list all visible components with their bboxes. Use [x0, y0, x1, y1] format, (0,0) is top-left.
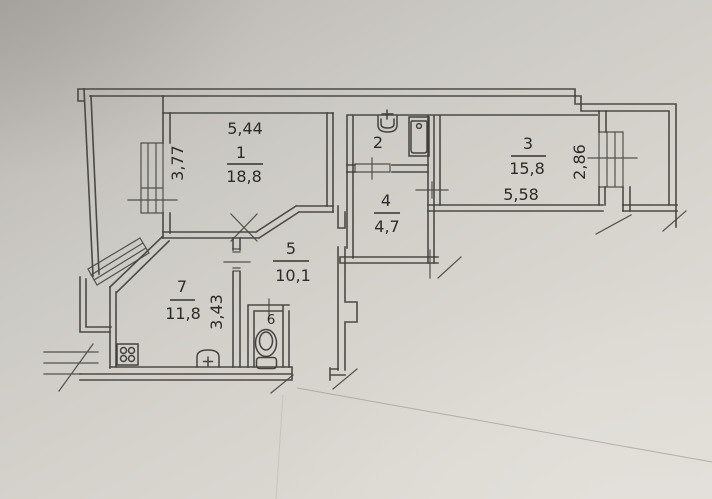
- room-3-number-label: 3: [523, 134, 533, 153]
- wall-left-outer: [84, 89, 99, 276]
- room-1-right-wall: [327, 113, 333, 212]
- room-1-area-label: 18,8: [226, 167, 262, 186]
- room-6-number-label: 6: [267, 312, 276, 328]
- balcony-right-bottom-wall: [623, 205, 677, 211]
- dim-side-room-1: 3,77: [168, 145, 187, 181]
- stove-burner-icon: [121, 356, 127, 362]
- room-2-number-label: 2: [373, 133, 383, 152]
- paper-creases: [276, 388, 712, 499]
- bathtub-drain-icon: [417, 124, 422, 129]
- section-tick-right: [663, 211, 686, 231]
- bottom-outer-wall: [80, 368, 345, 380]
- room-7-area-label: 11,8: [165, 304, 201, 323]
- balcony-right-door-swing: [596, 215, 631, 234]
- room-1-window: [141, 143, 163, 213]
- room-5-number-label: 5: [286, 239, 296, 258]
- room-4-left-wall: [347, 172, 353, 258]
- dim-width-room-3: 5,58: [503, 185, 539, 204]
- room-3: 3 15,8 5,58 2,86: [428, 111, 637, 211]
- room-4-bottom-wall: [340, 257, 438, 263]
- wall-tick-room-3-door: [416, 182, 448, 198]
- wc-bowl-icon: [256, 330, 277, 357]
- room-1-door-swing: [231, 214, 257, 241]
- room-2-door-leaf: [355, 158, 390, 179]
- room-5-hall: 5 10,1: [273, 206, 357, 370]
- room-7-kitchen: 7 11,8 3,43: [110, 237, 292, 368]
- room-6-wc: 6: [248, 299, 289, 369]
- room-2-walls: [347, 115, 597, 263]
- room-3-bottom-wall: [428, 205, 603, 211]
- stove-burner-icon: [129, 356, 135, 362]
- room-4-area-label: 4,7: [374, 217, 399, 236]
- room-3-area-label: 15,8: [509, 159, 545, 178]
- room-2-bathroom: 2: [347, 110, 597, 263]
- room-5-area-label: 10,1: [275, 266, 311, 285]
- floor-plan-drawing: 5,44 1 18,8 3,77 2 3 15,8 5,58 2,86 4: [0, 0, 712, 499]
- kitchen-sink-icon: [197, 350, 219, 367]
- exterior-hatch-lines: [44, 344, 98, 391]
- room-7-right-wall: [233, 238, 240, 367]
- room-1-number-label: 1: [236, 143, 246, 162]
- balcony-left-lower-wall: [80, 277, 111, 332]
- room-2-bottom-wall: [347, 165, 428, 172]
- room-1-bottom-wall: [163, 206, 333, 238]
- stove-burner-icon: [121, 348, 127, 354]
- room-4-number-label: 4: [381, 191, 391, 210]
- room-3-window: [588, 132, 637, 187]
- pencil-crease-diagonal: [297, 388, 712, 462]
- bathroom-sink-icon: [378, 110, 397, 132]
- balcony-left: [80, 238, 149, 332]
- dim-side-room-7: 3,43: [207, 294, 226, 330]
- room-7-number-label: 7: [177, 277, 187, 296]
- paper-crease-vertical: [276, 395, 283, 499]
- bathtub-icon: [409, 117, 429, 156]
- dim-side-room-3: 2,86: [570, 144, 589, 180]
- room-7-door-bars: [224, 249, 250, 271]
- entrance-door-ticks: [271, 369, 357, 393]
- room-4-hall: 4 4,7: [340, 172, 461, 278]
- dim-width-room-1: 5,44: [227, 119, 263, 138]
- stove-icon: [117, 344, 138, 365]
- stove-burner-icon: [129, 348, 135, 354]
- room-1: 5,44 1 18,8 3,77: [128, 96, 333, 241]
- wc-bowl-inner-icon: [260, 332, 273, 350]
- floor-plan-photo: 5,44 1 18,8 3,77 2 3 15,8 5,58 2,86 4: [0, 0, 712, 499]
